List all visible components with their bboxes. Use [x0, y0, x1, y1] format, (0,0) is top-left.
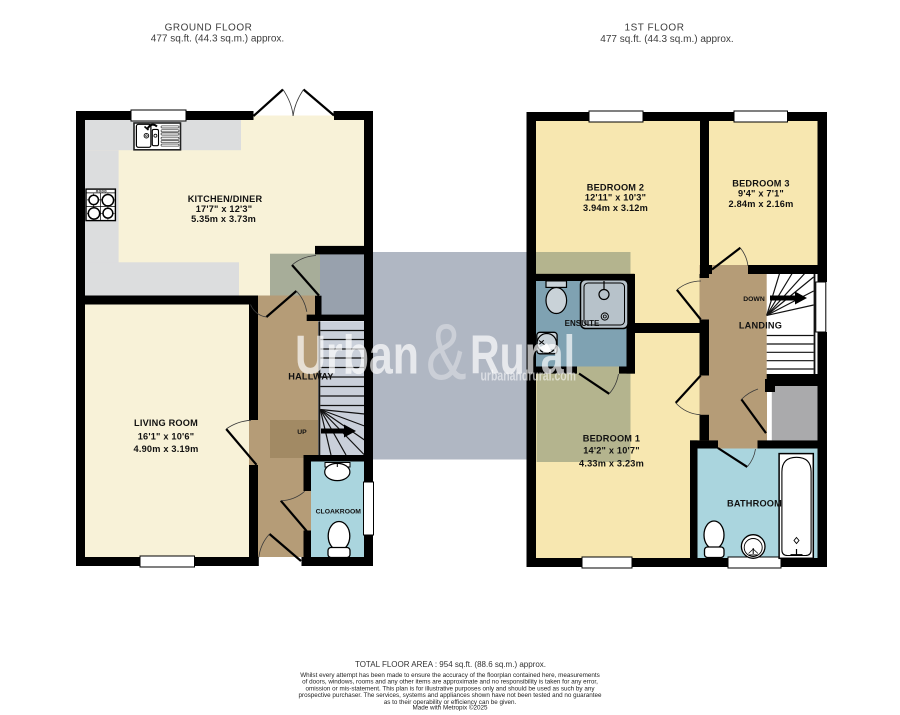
svg-text:CLOAKROOM: CLOAKROOM [316, 509, 362, 516]
svg-text:17'7" x 12'3": 17'7" x 12'3" [196, 204, 253, 214]
svg-text:UP: UP [297, 429, 307, 436]
svg-text:BATHROOM: BATHROOM [727, 499, 782, 509]
svg-text:&: & [426, 308, 467, 397]
svg-text:477 sq.ft. (44.3 sq.m.) approx: 477 sq.ft. (44.3 sq.m.) approx. [151, 34, 284, 45]
svg-text:5.35m x 3.73m: 5.35m x 3.73m [191, 214, 256, 224]
svg-text:BEDROOM 3: BEDROOM 3 [732, 179, 789, 189]
svg-text:GROUND FLOOR: GROUND FLOOR [165, 23, 253, 34]
svg-text:BEDROOM 1: BEDROOM 1 [583, 434, 640, 444]
svg-text:BEDROOM 2: BEDROOM 2 [587, 183, 644, 193]
svg-text:DOWN: DOWN [743, 296, 765, 303]
svg-text:Made with Metropix ©2025: Made with Metropix ©2025 [413, 704, 488, 712]
svg-text:12'11" x 10'3": 12'11" x 10'3" [585, 193, 646, 203]
svg-text:TOTAL FLOOR AREA : 954 sq.ft.: TOTAL FLOOR AREA : 954 sq.ft. (88.6 sq.m… [355, 660, 546, 669]
svg-text:4.33m x 3.23m: 4.33m x 3.23m [579, 459, 644, 469]
svg-text:9'4" x 7'1": 9'4" x 7'1" [738, 189, 784, 199]
svg-text:477 sq.ft. (44.3 sq.m.) approx: 477 sq.ft. (44.3 sq.m.) approx. [600, 34, 733, 45]
svg-text:LANDING: LANDING [739, 321, 782, 331]
svg-text:urbanandrural.com: urbanandrural.com [481, 368, 577, 385]
svg-text:KITCHEN/DINER: KITCHEN/DINER [188, 194, 263, 204]
svg-text:1ST FLOOR: 1ST FLOOR [625, 23, 685, 34]
svg-text:16'1" x 10'6": 16'1" x 10'6" [138, 431, 195, 441]
svg-text:Urban: Urban [295, 324, 419, 386]
svg-text:4.90m x 3.19m: 4.90m x 3.19m [134, 444, 199, 454]
svg-text:LIVING ROOM: LIVING ROOM [134, 418, 198, 428]
svg-text:2.84m x 2.16m: 2.84m x 2.16m [729, 199, 794, 209]
svg-text:14'2" x 10'7": 14'2" x 10'7" [583, 445, 640, 455]
svg-text:3.94m x 3.12m: 3.94m x 3.12m [583, 203, 648, 213]
